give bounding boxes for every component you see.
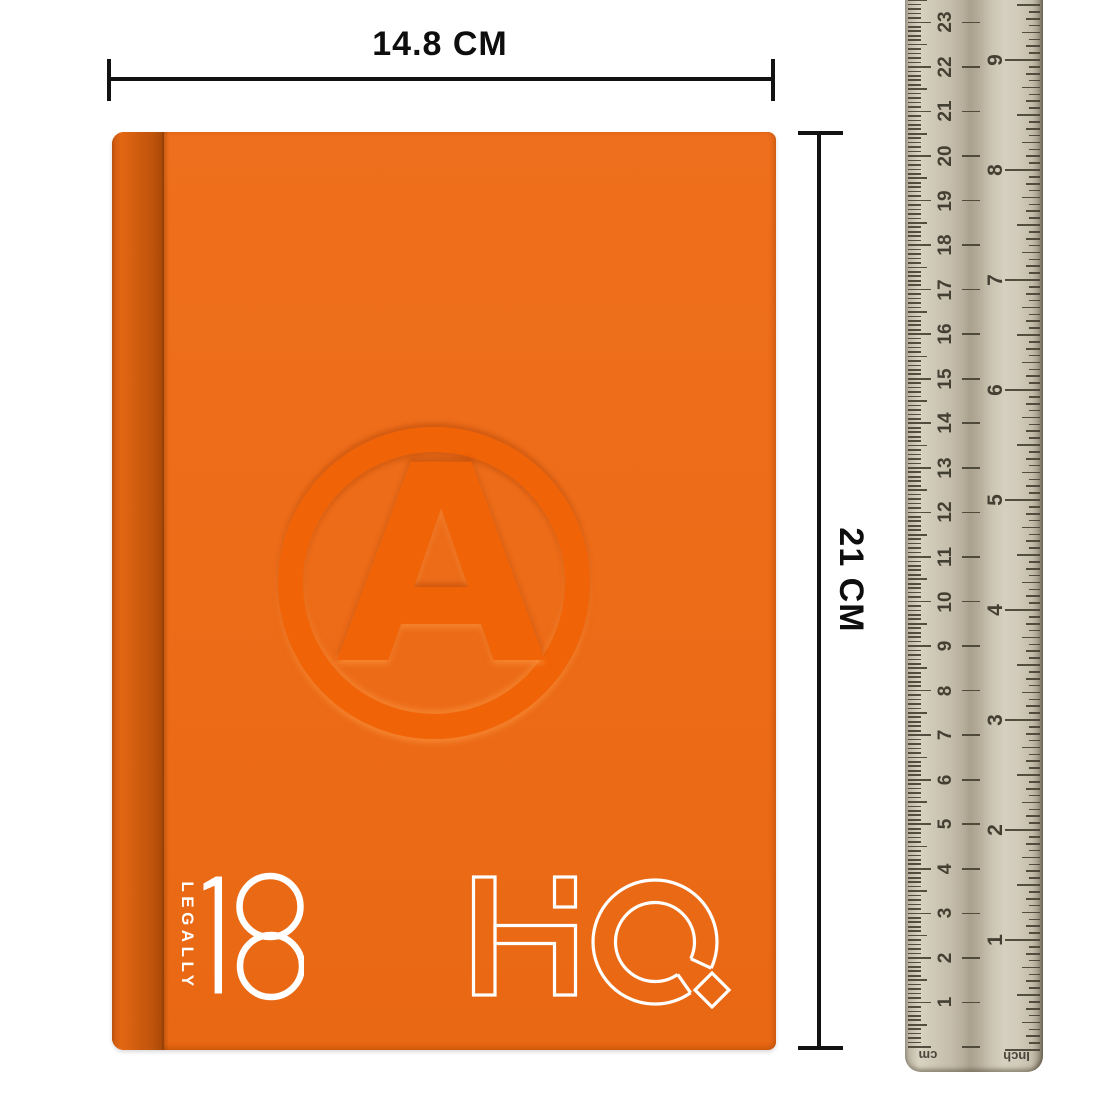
ruler-cm-tick <box>908 984 921 986</box>
ruler-cm-tick <box>908 944 921 946</box>
ruler-cm-tick <box>962 422 980 424</box>
ruler-cm-tick <box>908 75 921 77</box>
ruler-inch-tick <box>1026 540 1040 542</box>
ruler-inch-tick <box>1017 224 1040 226</box>
ruler-cm-tick <box>908 39 921 41</box>
ruler-cm-tick <box>908 151 921 153</box>
ruler-inch-tick <box>1017 994 1040 996</box>
ruler-inch-tick <box>1029 341 1040 343</box>
ruler-cm-tick <box>908 204 921 206</box>
ruler-cm-tick <box>962 512 980 514</box>
ruler-inch-tick <box>1029 272 1040 274</box>
ruler-cm-number: 4 <box>936 847 956 891</box>
ruler-inch-tick <box>1005 499 1040 501</box>
ruler-cm-tick <box>908 574 921 576</box>
ruler-cm-tick <box>908 106 921 108</box>
ruler-inch-tick <box>1029 437 1040 439</box>
ruler-inch-tick <box>1022 1022 1040 1024</box>
ruler-inch-tick <box>1017 664 1040 666</box>
ruler-cm-tick <box>908 1028 921 1030</box>
q-notch-edge-upper <box>691 959 711 969</box>
ruler-inch-tick <box>1005 389 1040 391</box>
ruler-cm-tick <box>908 422 931 424</box>
ruler-inch-tick <box>1029 864 1040 866</box>
ruler-cm-tick <box>962 333 980 335</box>
ruler-cm-tick <box>908 556 931 558</box>
ruler-cm-tick <box>962 1046 980 1048</box>
ruler-cm-tick <box>908 1011 921 1013</box>
ruler-cm-tick <box>908 814 921 816</box>
ruler-cm-tick <box>908 872 921 874</box>
ruler-inch-tick <box>1029 644 1040 646</box>
ruler-cm-tick <box>908 721 921 723</box>
ruler-cm-tick <box>908 13 921 15</box>
ruler-cm-tick <box>908 997 921 999</box>
ruler-cm-tick <box>908 507 921 509</box>
ruler-cm-tick <box>908 1033 921 1035</box>
ruler-cm-tick <box>908 213 921 215</box>
h-crossbar <box>495 926 576 996</box>
ruler-cm-tick <box>908 382 921 384</box>
ruler-inch-number: 4 <box>985 595 1007 625</box>
ruler-inch-tick <box>1029 740 1040 742</box>
q-inner-ring <box>616 903 695 982</box>
ruler-cm-tick <box>908 993 921 995</box>
ruler-cm-tick <box>908 672 921 674</box>
ruler-cm-tick <box>908 115 921 117</box>
ruler-inch-tick <box>1026 430 1040 432</box>
ruler-inch-tick <box>1029 39 1040 41</box>
ruler-cm-tick <box>908 962 921 964</box>
ruler-inch-tick <box>1029 245 1040 247</box>
ruler-cm-tick <box>908 1015 921 1017</box>
digit-eight-bottom-circle <box>240 935 302 997</box>
ruler-cm-tick <box>908 26 921 28</box>
ruler-cm-tick <box>908 939 921 941</box>
ruler-inch-tick <box>1029 877 1040 879</box>
ruler-cm-tick <box>962 957 980 959</box>
ruler-cm-tick <box>908 485 921 487</box>
ruler-inch-tick <box>1022 362 1040 364</box>
ruler-cm-number: 7 <box>936 713 956 757</box>
notebook-cover: A LEGALLY <box>112 132 776 1050</box>
ruler-inch-tick <box>1029 382 1040 384</box>
hq-logo <box>470 875 732 1009</box>
ruler-cm-tick <box>908 320 921 322</box>
ruler-cm-number: 22 <box>936 45 956 89</box>
ruler-cm-tick <box>908 525 921 527</box>
ruler-cm-tick <box>908 347 921 349</box>
ruler-inch-tick <box>1029 66 1040 68</box>
ruler-cm-tick <box>908 293 921 295</box>
ruler-cm-number: 13 <box>936 446 956 490</box>
ruler-cm-number: 17 <box>936 268 956 312</box>
ruler-cm-tick <box>908 716 921 718</box>
ruler-inch-tick <box>1026 788 1040 790</box>
ruler-inch-tick <box>1029 891 1040 893</box>
ruler-cm-number: 6 <box>936 758 956 802</box>
ruler-cm-tick <box>908 725 921 727</box>
ruler-cm-tick <box>908 333 931 335</box>
ruler-cm-tick <box>908 142 921 144</box>
ruler-inch-tick <box>1029 781 1040 783</box>
ruler-inch-tick <box>1022 692 1040 694</box>
ruler-cm-tick <box>908 1046 931 1048</box>
ruler-cm-tick <box>908 1006 921 1008</box>
ruler-cm-tick <box>908 458 921 460</box>
ruler-inch-tick <box>1029 602 1040 604</box>
ruler-inch-tick <box>1029 754 1040 756</box>
ruler-inch-tick <box>1026 705 1040 707</box>
ruler-cm-tick <box>908 846 927 848</box>
ruler-inch-tick <box>1026 210 1040 212</box>
ruler-cm-tick <box>908 391 921 393</box>
ruler-inch-tick <box>1026 513 1040 515</box>
width-dimension-cap-left <box>107 59 111 101</box>
ruler-cm-tick <box>908 440 921 442</box>
ruler-inch-tick <box>1029 52 1040 54</box>
ruler-cm-number: 10 <box>936 580 956 624</box>
ruler-cm-tick <box>908 30 921 32</box>
ruler-inch-tick <box>1026 843 1040 845</box>
ruler-inch-tick <box>1029 1029 1040 1031</box>
q-diamond-tail <box>695 973 729 1007</box>
ruler-inch-tick <box>1017 884 1040 886</box>
ruler-inch-tick <box>1029 107 1040 109</box>
ruler-cm-tick <box>908 1019 921 1021</box>
ruler-inch-tick <box>1029 121 1040 123</box>
ruler-cm-tick <box>908 957 931 959</box>
width-dimension-label: 14.8 CM <box>340 26 540 62</box>
ruler-inch-tick <box>1026 458 1040 460</box>
ruler-cm-tick <box>908 970 921 972</box>
ruler-cm-tick <box>962 779 980 781</box>
ruler-cm-tick <box>908 133 927 135</box>
ruler-cm-tick <box>908 743 921 745</box>
ruler-cm-tick <box>908 605 921 607</box>
ruler-cm-tick <box>908 667 927 669</box>
ruler-cm-tick <box>908 396 921 398</box>
ruler-cm-tick <box>908 177 927 179</box>
ruler-cm-tick <box>908 797 921 799</box>
ruler-cm-tick <box>908 302 921 304</box>
ruler-inch-tick <box>1026 73 1040 75</box>
ruler-cm-tick <box>908 311 927 313</box>
ruler-inch-tick <box>1026 980 1040 982</box>
ruler-cm-tick <box>908 146 921 148</box>
ruler-cm-tick <box>908 547 921 549</box>
ruler-inch-tick <box>1029 932 1040 934</box>
ruler-cm-tick <box>908 636 921 638</box>
ruler-inch-tick <box>1029 795 1040 797</box>
ruler-cm-tick <box>908 218 921 220</box>
ruler-inch-tick <box>1005 169 1040 171</box>
ruler-cm-tick <box>962 556 980 558</box>
ruler-inch-tick <box>1029 630 1040 632</box>
ruler-inch-tick <box>1022 637 1040 639</box>
ruler-cm-tick <box>908 289 931 291</box>
ruler-inch-tick <box>1029 1015 1040 1017</box>
ruler-cm-tick <box>908 164 921 166</box>
ruler-cm-tick <box>908 761 921 763</box>
ruler-cm-tick <box>908 837 921 839</box>
ruler-inch-tick <box>1029 589 1040 591</box>
ruler-inch-tick <box>1017 554 1040 556</box>
ruler-cm-number: 21 <box>936 89 956 133</box>
ruler-cm-tick <box>908 231 921 233</box>
ruler-cm-tick <box>962 868 980 870</box>
ruler-inch-tick <box>1022 307 1040 309</box>
spine-brand-text: LEGALLY <box>177 871 197 1001</box>
ruler-cm-tick <box>962 111 980 113</box>
ruler-cm-tick <box>908 779 931 781</box>
ruler-cm-tick <box>908 676 921 678</box>
ruler-cm-tick <box>908 351 921 353</box>
ruler-inch-tick <box>1029 286 1040 288</box>
ruler-inch-tick <box>1017 4 1040 6</box>
ruler-cm-tick <box>908 645 931 647</box>
ruler-inch-tick <box>1029 657 1040 659</box>
ruler-inch-tick <box>1029 190 1040 192</box>
ruler-inch-tick <box>1026 183 1040 185</box>
ruler-cm-tick <box>908 186 921 188</box>
ruler-inch-tick <box>1029 836 1040 838</box>
ruler-cm-tick <box>908 904 921 906</box>
ruler-cm-tick <box>908 360 921 362</box>
ruler-inch-tick <box>1029 479 1040 481</box>
ruler-cm-number: 9 <box>936 624 956 668</box>
ruler-cm-tick <box>908 703 921 705</box>
ruler-cm-tick <box>908 859 921 861</box>
ruler-inch-tick <box>1029 575 1040 577</box>
ruler-cm-tick <box>908 356 927 358</box>
ruler-cm-tick <box>908 578 927 580</box>
ruler-cm-tick <box>908 569 921 571</box>
ruler-cm-tick <box>908 494 921 496</box>
ruler-inch-tick <box>1005 829 1040 831</box>
ruler-cm-tick <box>908 534 927 536</box>
ruler-cm-tick <box>908 431 921 433</box>
ruler-inch-tick <box>1029 11 1040 13</box>
ruler-cm-tick <box>908 899 921 901</box>
ruler-inch-tick <box>1026 403 1040 405</box>
ruler-cm-number: 5 <box>936 802 956 846</box>
ruler-inch-tick <box>1029 850 1040 852</box>
ruler-cm-tick <box>908 418 921 420</box>
ruler-cm-tick <box>962 200 980 202</box>
ruler-cm-tick <box>908 275 921 277</box>
ruler-cm-tick <box>908 240 921 242</box>
width-dimension-line <box>109 77 773 81</box>
ruler-inch-tick <box>1022 747 1040 749</box>
ruler-inch-tick <box>1005 939 1040 941</box>
ruler-inch-tick <box>1029 176 1040 178</box>
ruler-cm-tick <box>908 436 921 438</box>
ruler-cm-tick <box>908 979 927 981</box>
ruler-inch-tick <box>1026 870 1040 872</box>
ruler-cm-tick <box>908 650 921 652</box>
ruler-inch-number: 3 <box>985 705 1007 735</box>
ruler-inch-tick <box>1029 162 1040 164</box>
ruler-inch-tick <box>1022 967 1040 969</box>
ruler-cm-tick <box>908 88 927 90</box>
ruler-cm-tick <box>908 596 921 598</box>
ruler-inch-tick <box>1005 1049 1040 1051</box>
ruler-cm-tick <box>908 155 931 157</box>
ruler-inch-tick <box>1029 685 1040 687</box>
ruler-inch-tick <box>1029 506 1040 508</box>
ruler-cm-tick <box>908 191 921 193</box>
ruler-cm-tick <box>908 405 921 407</box>
ruler-inch-tick <box>1026 100 1040 102</box>
ruler-cm-tick <box>908 503 921 505</box>
ruler-cm-tick <box>908 124 921 126</box>
ruler-cm-tick <box>908 169 921 171</box>
ruler-cm-number: 12 <box>936 490 956 534</box>
ruler-cm-tick <box>908 823 931 825</box>
ruler-cm-tick <box>908 445 927 447</box>
ruler-cm-tick <box>962 1002 980 1004</box>
ruler-cm-tick <box>908 841 921 843</box>
ruler-cm-tick <box>908 226 921 228</box>
ruler-cm-tick <box>908 173 921 175</box>
ruler-cm-tick <box>908 22 931 24</box>
ruler-cm-tick <box>908 369 921 371</box>
ruler-inch-tick <box>1029 300 1040 302</box>
edition-number-graphic <box>203 871 304 1002</box>
ruler-cm-tick <box>908 739 921 741</box>
ruler-inch-tick <box>1022 802 1040 804</box>
ruler-inch-tick <box>1022 32 1040 34</box>
ruler-inch-tick <box>1029 616 1040 618</box>
ruler-inch-tick <box>1029 149 1040 151</box>
ruler-inch-tick <box>1029 534 1040 536</box>
ruler-inch-tick <box>1029 1042 1040 1044</box>
ruler-cm-tick <box>908 863 921 865</box>
ruler-cm-tick <box>908 471 921 473</box>
ruler-inch-number: 7 <box>985 265 1007 295</box>
ruler-cm-tick <box>908 748 921 750</box>
ruler-cm-tick <box>908 855 921 857</box>
ruler-cm-tick <box>908 128 921 130</box>
ruler-inch-tick <box>1029 1001 1040 1003</box>
height-dimension-cap-bottom <box>798 1046 843 1050</box>
ruler-cm-number: 11 <box>936 535 956 579</box>
ruler-cm-tick <box>908 627 921 629</box>
ruler-inch-tick <box>1029 919 1040 921</box>
ruler-inch-tick <box>1026 348 1040 350</box>
ruler-cm-tick <box>908 71 921 73</box>
ruler-cm-tick <box>908 387 921 389</box>
ruler-inch-tick <box>1026 898 1040 900</box>
ruler-cm-tick <box>908 935 927 937</box>
ruler-inch-tick <box>1022 87 1040 89</box>
ruler-inch-tick <box>1026 595 1040 597</box>
ruler-inch-tick <box>1029 327 1040 329</box>
ruler-cm-tick <box>908 913 931 915</box>
ruler-inch-tick <box>1026 485 1040 487</box>
ruler-cm-tick <box>908 538 921 540</box>
ruler-cm-tick <box>908 378 931 380</box>
ruler-cm-number: 14 <box>936 401 956 445</box>
ruler-cm-tick <box>908 373 921 375</box>
ruler-cm-tick <box>908 111 931 113</box>
ruler-inch-tick <box>1029 80 1040 82</box>
ruler-inch-number: 8 <box>985 155 1007 185</box>
ruler-inch-tick <box>1029 94 1040 96</box>
ruler-cm-tick <box>962 66 980 68</box>
ruler-cm-tick <box>962 601 980 603</box>
ruler-cm-tick <box>908 886 921 888</box>
ruler-cm-tick <box>908 908 921 910</box>
ruler-cm-tick <box>908 592 921 594</box>
ruler-cm-tick <box>908 329 921 331</box>
ruler-cm-tick <box>908 253 921 255</box>
ruler-cm-tick <box>908 890 927 892</box>
ruler-cm-tick <box>908 953 921 955</box>
ruler-cm-tick <box>908 806 921 808</box>
ruler-inch-tick <box>1026 925 1040 927</box>
ruler-cm-tick <box>908 102 921 104</box>
ruler-cm-tick <box>908 35 921 37</box>
ruler-cm-tick <box>962 244 980 246</box>
ruler-cm-tick <box>908 1002 931 1004</box>
notebook-spine-fold <box>162 132 169 1050</box>
ruler-cm-tick <box>908 480 921 482</box>
ruler-cm-tick <box>908 663 921 665</box>
ruler-cm-tick <box>908 160 921 162</box>
ruler-inch-tick <box>1026 155 1040 157</box>
ruler-cm-tick <box>908 97 921 99</box>
ruler-inch-tick <box>1026 953 1040 955</box>
ruler-inch-tick <box>1029 25 1040 27</box>
ruler-cm-tick <box>908 338 921 340</box>
ruler-cm-tick <box>908 877 921 879</box>
ruler-cm-tick <box>908 881 921 883</box>
ruler-inch-tick <box>1026 733 1040 735</box>
ruler-cm-tick <box>908 921 921 923</box>
ruler-cm-tick <box>908 832 921 834</box>
ruler-cm-number: 2 <box>936 936 956 980</box>
ruler-cm-tick <box>908 284 921 286</box>
ruler-cm-tick <box>908 1037 921 1039</box>
ruler-cm-tick <box>908 757 927 759</box>
ruler-inch-tick <box>1022 912 1040 914</box>
ruler-cm-tick <box>908 623 927 625</box>
ruler-inch-tick <box>1017 774 1040 776</box>
ruler-inch-tick <box>1029 946 1040 948</box>
ruler-inch-number: 5 <box>985 485 1007 515</box>
ruler-cm-tick <box>908 427 921 429</box>
ruler-cm-tick <box>908 801 927 803</box>
ruler-cm-tick <box>962 913 980 915</box>
ruler-cm-tick <box>908 516 921 518</box>
ruler-cm-tick <box>908 84 921 86</box>
ruler-inch-tick <box>1005 59 1040 61</box>
ruler-cm-tick <box>908 543 921 545</box>
ruler-inch-tick <box>1029 369 1040 371</box>
ruler-cm-tick <box>908 200 931 202</box>
ruler-cm-tick <box>908 298 921 300</box>
ruler-cm-tick <box>908 44 927 46</box>
ruler-cm-tick <box>908 449 921 451</box>
ruler-cm-tick <box>908 783 921 785</box>
ruler-inch-tick <box>1029 547 1040 549</box>
ruler-inch-tick <box>1029 424 1040 426</box>
ruler-inch-number: 2 <box>985 815 1007 845</box>
ruler-cm-tick <box>908 988 921 990</box>
ruler-cm-tick <box>908 235 921 237</box>
